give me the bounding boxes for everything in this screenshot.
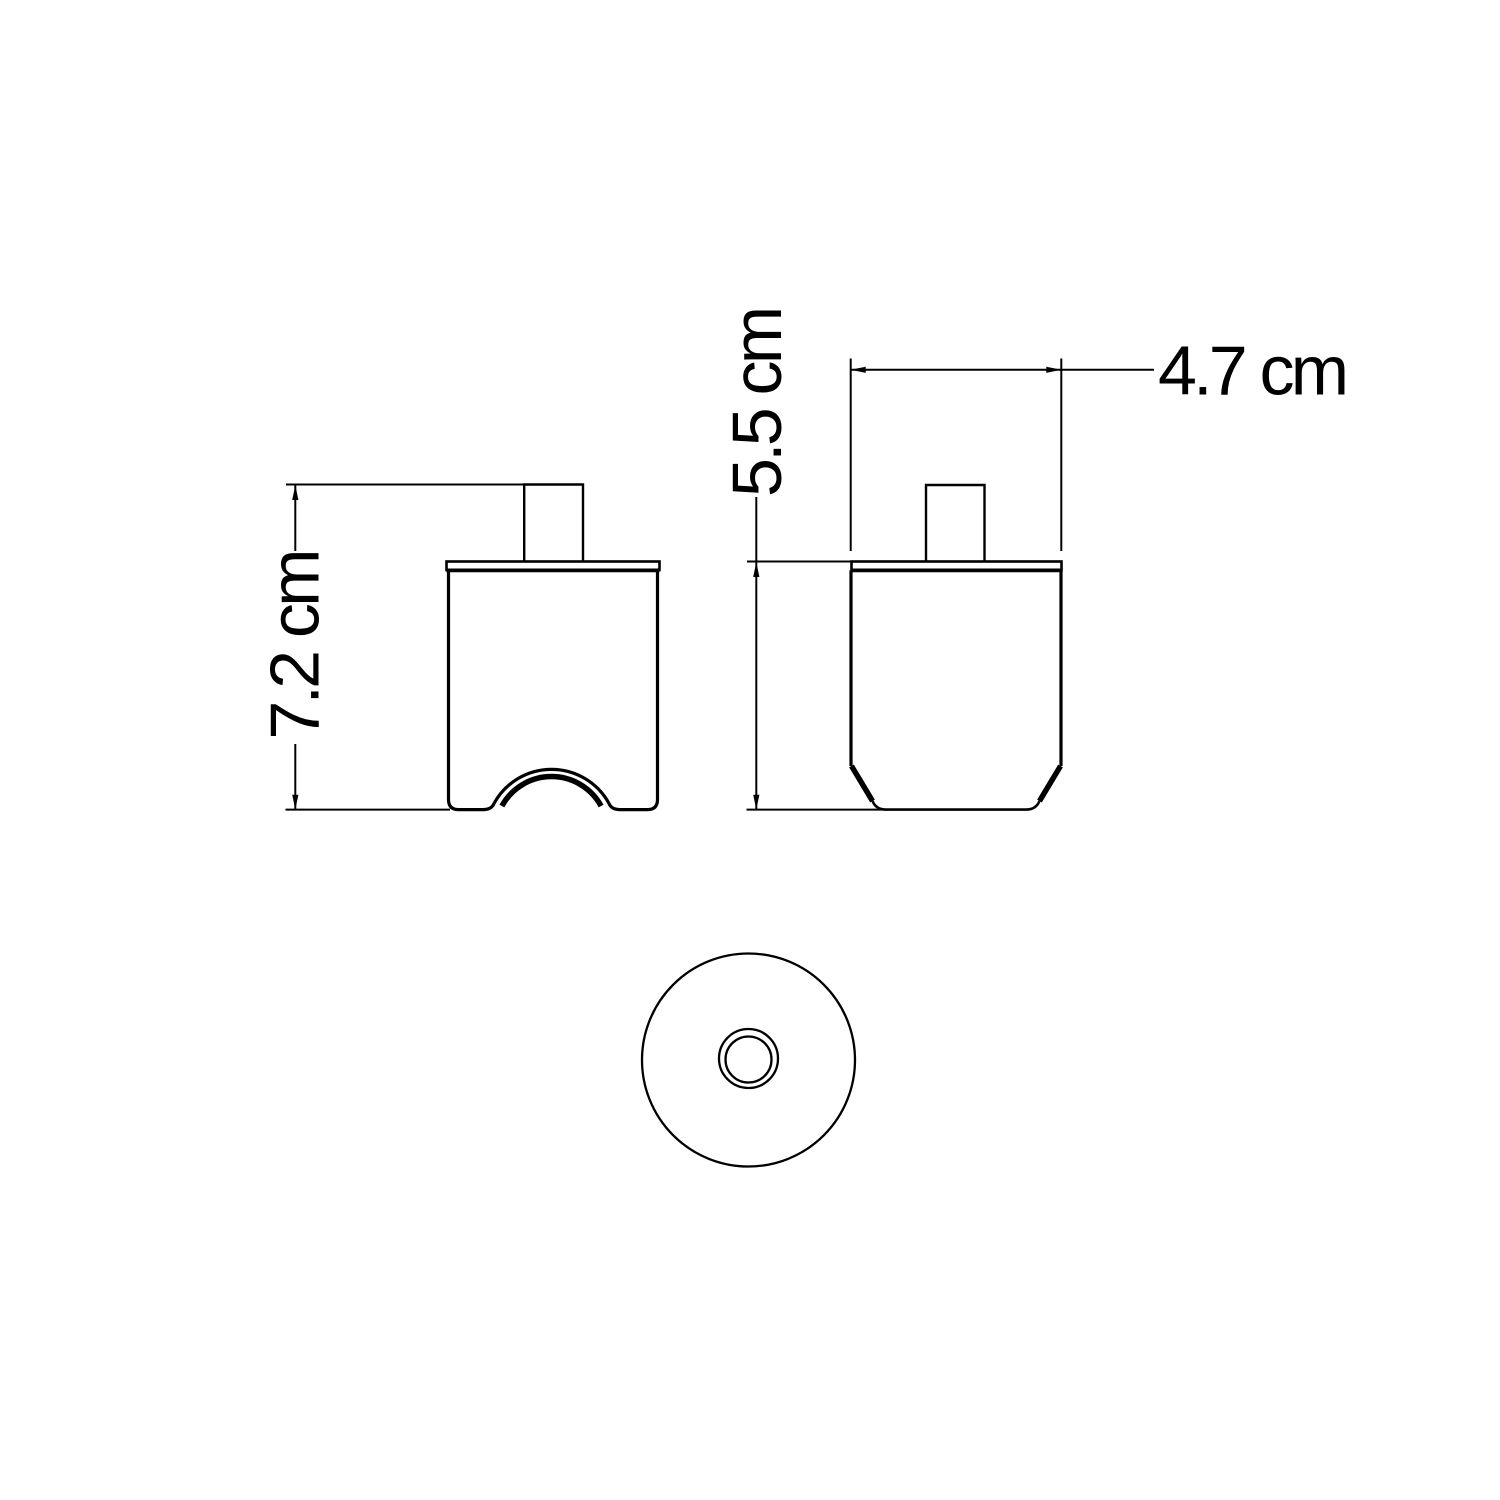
svg-text:4.7 cm: 4.7 cm — [1158, 332, 1345, 410]
svg-text:7.2 cm: 7.2 cm — [256, 552, 334, 739]
svg-text:5.5 cm: 5.5 cm — [718, 310, 796, 497]
